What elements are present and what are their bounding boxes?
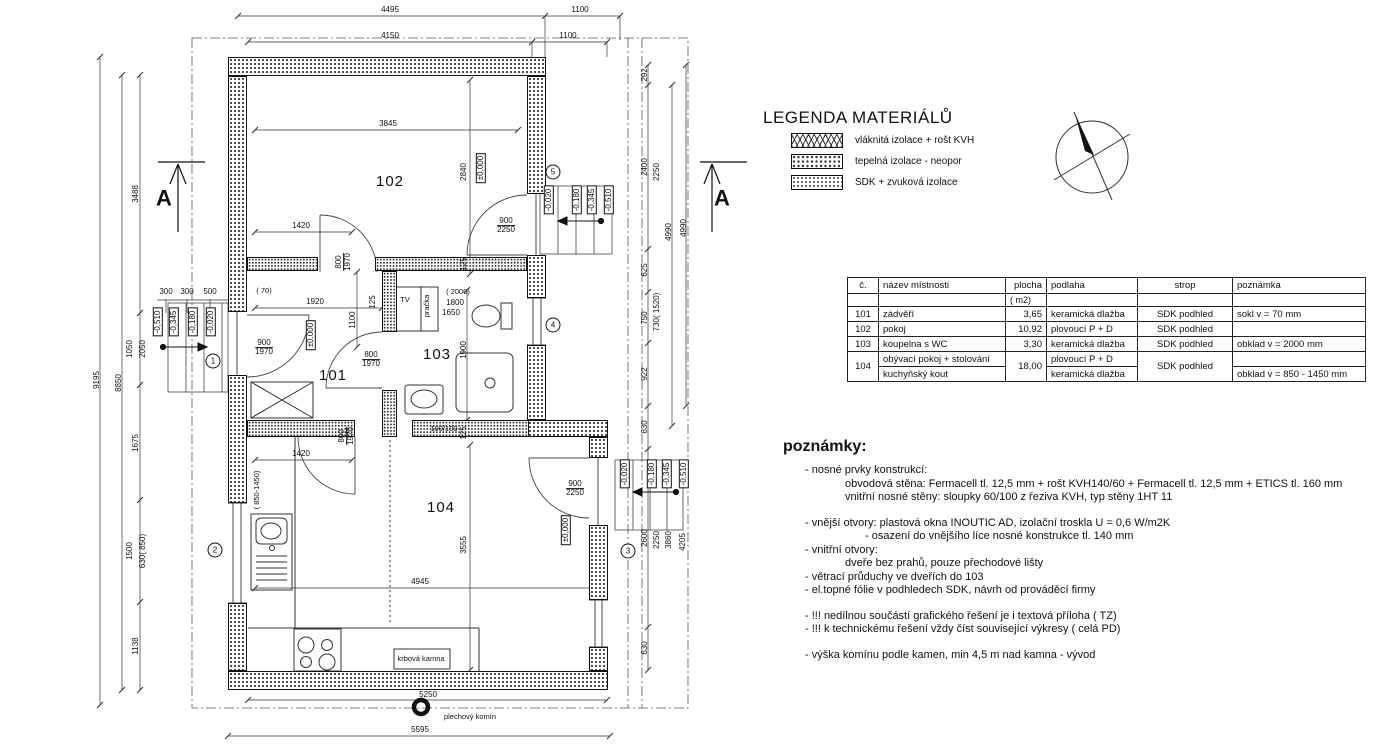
dim-label: 1050 xyxy=(126,340,134,358)
north-arrow-icon xyxy=(1054,112,1130,200)
dim-label: 1920 xyxy=(306,298,324,306)
washbasin xyxy=(405,385,443,414)
dim-label: 125 xyxy=(460,426,468,439)
dim-label: 625 xyxy=(641,263,649,276)
dim-label: -0,180 xyxy=(572,186,582,215)
dim-label: 630 xyxy=(641,641,649,654)
col-area: plocha xyxy=(1006,278,1047,294)
dim-label: 3845 xyxy=(379,120,397,128)
wall-interior xyxy=(375,257,527,271)
legend-items: vláknitá izolace + rošt KVHtepelná izola… xyxy=(763,132,974,191)
dim-label: A xyxy=(714,186,730,209)
dim-label: 630 xyxy=(641,420,649,433)
dim-label: ( 2000) xyxy=(446,288,470,296)
table-subheader-row: ( m2) xyxy=(848,294,1366,307)
wall-mid-east xyxy=(527,420,608,437)
col-note: poznámka xyxy=(1233,278,1366,294)
dim-label: 1420 xyxy=(292,222,310,230)
dim-label: 1138 xyxy=(132,637,140,654)
note-line: dveře bez prahů, pouze přechodové lišty xyxy=(845,557,1303,571)
wall-left xyxy=(228,375,247,503)
wall-interior xyxy=(247,257,318,271)
shower xyxy=(456,353,513,412)
dim-label: 2840 xyxy=(460,163,468,181)
col-number: č. xyxy=(848,278,879,294)
notes-section: poznámky: - nosné prvky konstrukcí:obvod… xyxy=(783,438,1303,662)
note-line: - osazení do vnějšího líce nosné konstru… xyxy=(865,530,1303,544)
legend-item: tepelná izolace - neopor xyxy=(791,153,974,170)
dim-label: pračka xyxy=(423,295,431,318)
notes-title: poznámky: xyxy=(783,438,1303,456)
dim-label: ( 70) xyxy=(256,287,271,295)
table-row: 102 pokoj 10,92 plovoucí P + D SDK podhl… xyxy=(848,322,1366,337)
roof-overhang-outline xyxy=(192,38,688,708)
legend-item-label: vláknitá izolace + rošt KVH xyxy=(855,135,974,146)
dim-label: -0,020 xyxy=(620,460,630,489)
dim-label: 9195 xyxy=(93,371,101,389)
note-line: - vnitřní otvory: xyxy=(805,544,1303,558)
chimney xyxy=(414,700,428,714)
note-line: - větrací průduchy ve dveřích do 103 xyxy=(805,571,1303,585)
dim-label: 730( 1520) xyxy=(653,293,661,332)
dim-label: -0,020 xyxy=(544,186,554,215)
col-floor: podlaha xyxy=(1047,278,1138,294)
floor-plan-sheet: 4495110041501100919588503488105020501675… xyxy=(0,0,1400,752)
kitchen-sink xyxy=(251,514,292,590)
wall-interior xyxy=(382,271,397,332)
col-ceiling: strop xyxy=(1138,278,1233,294)
tv-cabinet xyxy=(395,287,421,331)
note-line: - el.topné fólie v podhledech SDK, návrh… xyxy=(805,584,1303,598)
dim-label: 2400 xyxy=(641,158,649,176)
dim-label: 630( 850) xyxy=(139,534,147,568)
dim-label: 922 xyxy=(641,367,649,380)
dim-label: 5595 xyxy=(411,726,429,734)
opening-reference: 1 xyxy=(206,354,221,369)
wall-bottom xyxy=(228,671,608,690)
note-line: - !!! nedílnou součástí grafického řešen… xyxy=(805,610,1303,624)
col-name: název místnosti xyxy=(879,278,1006,294)
opening-reference: 2 xyxy=(208,543,223,558)
wall-right-upper xyxy=(527,255,546,298)
note-line: - !!! k technickému řešení vždy číst sou… xyxy=(805,623,1303,637)
dim-label: -0,510 xyxy=(679,460,689,489)
table-row: kuchyňský kout keramická dlažba obklad v… xyxy=(848,367,1366,382)
dim-label: 5250 xyxy=(419,691,437,699)
dim-label: ±0,000 xyxy=(561,515,571,545)
dim-label: 1675 xyxy=(132,434,140,452)
dim-label: 1420 xyxy=(292,450,310,458)
legend-title: LEGENDA MATERIÁLŮ xyxy=(763,108,974,128)
dim-label: 4150 xyxy=(381,32,399,40)
room-number: 101 xyxy=(319,368,347,384)
note-line: - výška komínu podle kamen, min 4,5 m na… xyxy=(805,649,1303,663)
dim-label: 3488 xyxy=(132,185,140,203)
wc-toilet xyxy=(472,303,512,329)
dim-label: 4945 xyxy=(411,578,429,586)
legend-item: vláknitá izolace + rošt KVH xyxy=(791,132,974,149)
dim-label: -0,345 xyxy=(169,308,179,337)
dim-label: 125 xyxy=(369,295,377,308)
dim-label: 100/100 xyxy=(430,425,457,433)
wall-top xyxy=(228,57,546,76)
wall-right-lower xyxy=(589,647,608,671)
dim-label: 1800 xyxy=(446,299,464,307)
dim-label: 300 xyxy=(180,288,193,296)
neopor-hatch-swatch xyxy=(791,154,843,169)
dim-label: 2050 xyxy=(139,340,147,358)
room-number: 102 xyxy=(376,174,404,190)
dim-label: 8001970 xyxy=(362,351,380,369)
wall-right-upper xyxy=(527,76,546,194)
dim-label: 3860 xyxy=(665,531,673,549)
materials-legend: LEGENDA MATERIÁLŮ vláknitá izolace + roš… xyxy=(763,108,974,191)
area-unit: ( m2) xyxy=(1006,294,1047,307)
note-line: - nosné prvky konstrukcí: xyxy=(805,464,1303,478)
notes-lines: - nosné prvky konstrukcí:obvodová stěna:… xyxy=(783,464,1303,662)
dim-label: -0,180 xyxy=(647,460,657,489)
dim-label: ±0,000 xyxy=(306,320,316,350)
dim-label: 9002250 xyxy=(497,217,515,235)
wall-right-upper xyxy=(527,345,546,420)
dim-label: 2250 xyxy=(653,531,661,549)
wall-interior xyxy=(382,390,397,437)
opening-reference: 4 xyxy=(546,318,561,333)
dim-label: 500 xyxy=(203,288,216,296)
dim-label: 9002250 xyxy=(566,480,584,498)
dim-label: 4205 xyxy=(679,533,687,551)
dim-label: A xyxy=(156,186,172,209)
wall-right-lower xyxy=(589,437,608,458)
dim-label: -0,510 xyxy=(604,186,614,215)
dim-label: -0,180 xyxy=(188,308,198,337)
dim-label: -0,345 xyxy=(587,186,597,215)
legend-item-label: SDK + zvuková izolace xyxy=(855,177,958,188)
dim-label: 1500 xyxy=(126,542,134,560)
dim-label: 300 xyxy=(159,288,172,296)
dim-label: ±0,000 xyxy=(476,153,486,183)
dim-label: 8001970 xyxy=(335,253,353,271)
table-row: 101 zádvěří 3,65 keramická dlažba SDK po… xyxy=(848,307,1366,322)
dim-label: 1100 xyxy=(349,311,357,328)
dim-label: 1100 xyxy=(571,6,588,14)
room-number: 103 xyxy=(423,347,451,363)
note-line: obvodová stěna: Fermacell tl. 12,5 mm + … xyxy=(845,478,1303,492)
cabinet-101 xyxy=(251,382,313,418)
wall-left xyxy=(228,603,247,671)
dim-label: 1900 xyxy=(460,341,468,359)
dim-label: 2600 xyxy=(641,529,649,547)
opening-reference: 3 xyxy=(621,544,636,559)
dim-label: -0,510 xyxy=(153,308,163,337)
legend-item-label: tepelná izolace - neopor xyxy=(855,156,962,167)
wall-right-lower xyxy=(589,525,608,600)
dim-label: 4990 xyxy=(665,223,673,241)
fixtures xyxy=(248,287,513,714)
dim-label: 1650 xyxy=(442,309,460,317)
sdk-hatch-swatch xyxy=(791,175,843,190)
dim-label: 8001970 xyxy=(338,427,356,445)
table-header-row: č. název místnosti plocha podlaha strop … xyxy=(848,278,1366,294)
dim-label: 4495 xyxy=(381,6,399,14)
dim-label: 292 xyxy=(641,68,649,81)
dim-label: ( 850-1450) xyxy=(253,471,261,510)
legend-item: SDK + zvuková izolace xyxy=(791,174,974,191)
note-line: - vnější otvory: plastová okna INOUTIC A… xyxy=(805,517,1303,531)
dim-label: -0,345 xyxy=(662,460,672,489)
room-schedule-table: č. název místnosti plocha podlaha strop … xyxy=(847,277,1366,382)
dim-label: 9001970 xyxy=(255,339,273,357)
dim-label: 2250 xyxy=(653,163,661,181)
wall-left xyxy=(228,76,247,312)
dim-label: -0,020 xyxy=(206,308,216,337)
dim-label: TV xyxy=(400,296,410,304)
dim-label: 4990 xyxy=(680,219,688,237)
dim-label: plechový komín xyxy=(444,713,496,721)
dim-label: krbová kamna xyxy=(397,655,444,663)
note-line: vnitřní nosné stěny: sloupky 60/100 z ře… xyxy=(845,491,1303,505)
dim-label: 8850 xyxy=(115,374,123,392)
dim-label: 1100 xyxy=(559,32,576,40)
dim-label: 750 xyxy=(641,311,649,324)
table-row: 104 obývací pokoj + stolování 18,00 plov… xyxy=(848,352,1366,367)
dim-label: 125 xyxy=(460,257,468,270)
fiber-hatch-swatch xyxy=(791,133,843,148)
opening-reference: 5 xyxy=(546,165,561,180)
stove xyxy=(294,629,341,671)
table-row: 103 koupelna s WC 3,30 keramická dlažba … xyxy=(848,337,1366,352)
dim-label: 3555 xyxy=(460,536,468,554)
room-number: 104 xyxy=(427,500,455,516)
